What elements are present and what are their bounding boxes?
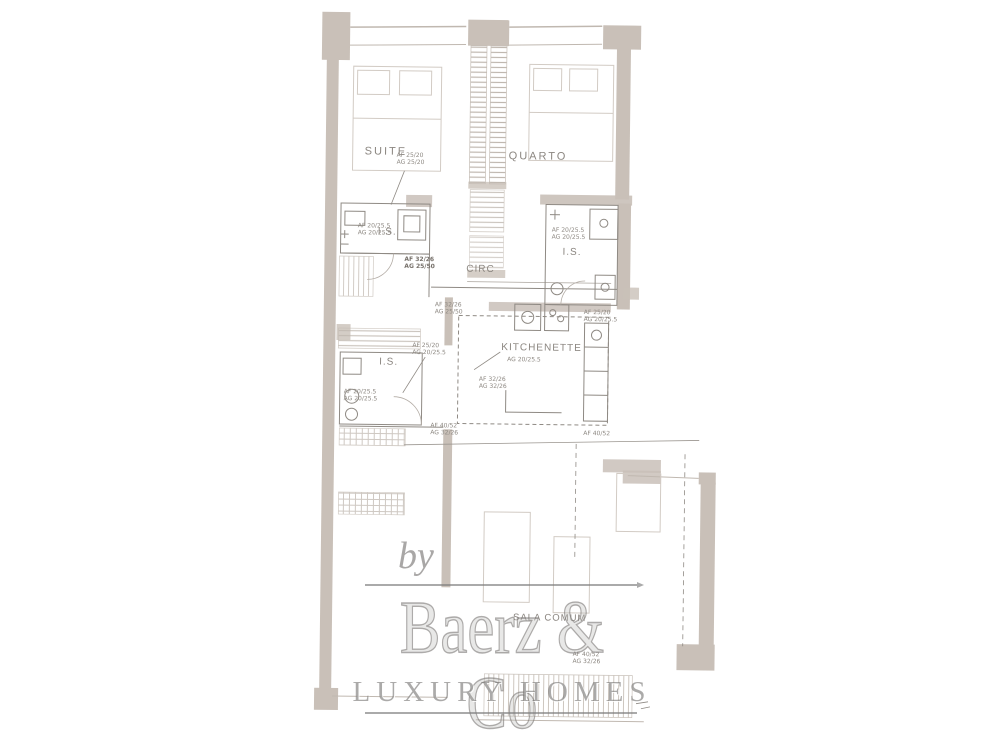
room-label-is2: I.S. (562, 247, 581, 258)
floorplan-drawing (0, 0, 1000, 750)
annotation-is1-window: AF 20/25.5 AG 20/25.5 (358, 222, 392, 236)
room-label-kitchenette: KITCHENETTE (501, 342, 582, 354)
annotation-circ-door: AF 32/26 AG 25/50 (404, 256, 435, 270)
annotation-kitchen-right: AF 25/20 AG 20/25.5 (584, 309, 618, 323)
dimension-lines (386, 171, 689, 647)
room-label-quarto: QUARTO (509, 150, 568, 163)
scanned-floorplan-page: SUITE QUARTO CIRC I.S. I.S. I.S. KITCHEN… (0, 0, 1000, 750)
floorplan: SUITE QUARTO CIRC I.S. I.S. I.S. KITCHEN… (0, 0, 1000, 750)
annotation-kitchenette-sub: AG 20/25.5 (507, 356, 541, 363)
annotation-kitchen-left: AF 32/26 AG 25/50 (435, 301, 463, 315)
room-label-is3: I.S. (379, 357, 398, 368)
annotation-sala-right: AF 40/52 (583, 430, 610, 437)
annotation-sala-left: AF 40/52 AG 32/26 (430, 422, 458, 436)
annotation-is2-window: AF 20/25.5 AG 20/25.5 (552, 227, 586, 241)
annotation-suite-window: AF 25/20 AG 25/20 (397, 152, 425, 166)
fixtures (335, 202, 702, 709)
room-label-sala-comum: SALA COMUM (513, 612, 586, 624)
annotation-is3-lower: AF 20/25.5 AG 20/25.5 (344, 388, 378, 402)
annotation-kitchen-mid: AF 32/26 AG 32/26 (479, 376, 507, 390)
room-label-circ: CIRC (466, 264, 495, 275)
annotation-is3-upper: AF 25/20 AG 20/25.5 (412, 342, 446, 356)
annotation-sala-bottom: AF 40/52 AG 32/26 (572, 651, 600, 665)
